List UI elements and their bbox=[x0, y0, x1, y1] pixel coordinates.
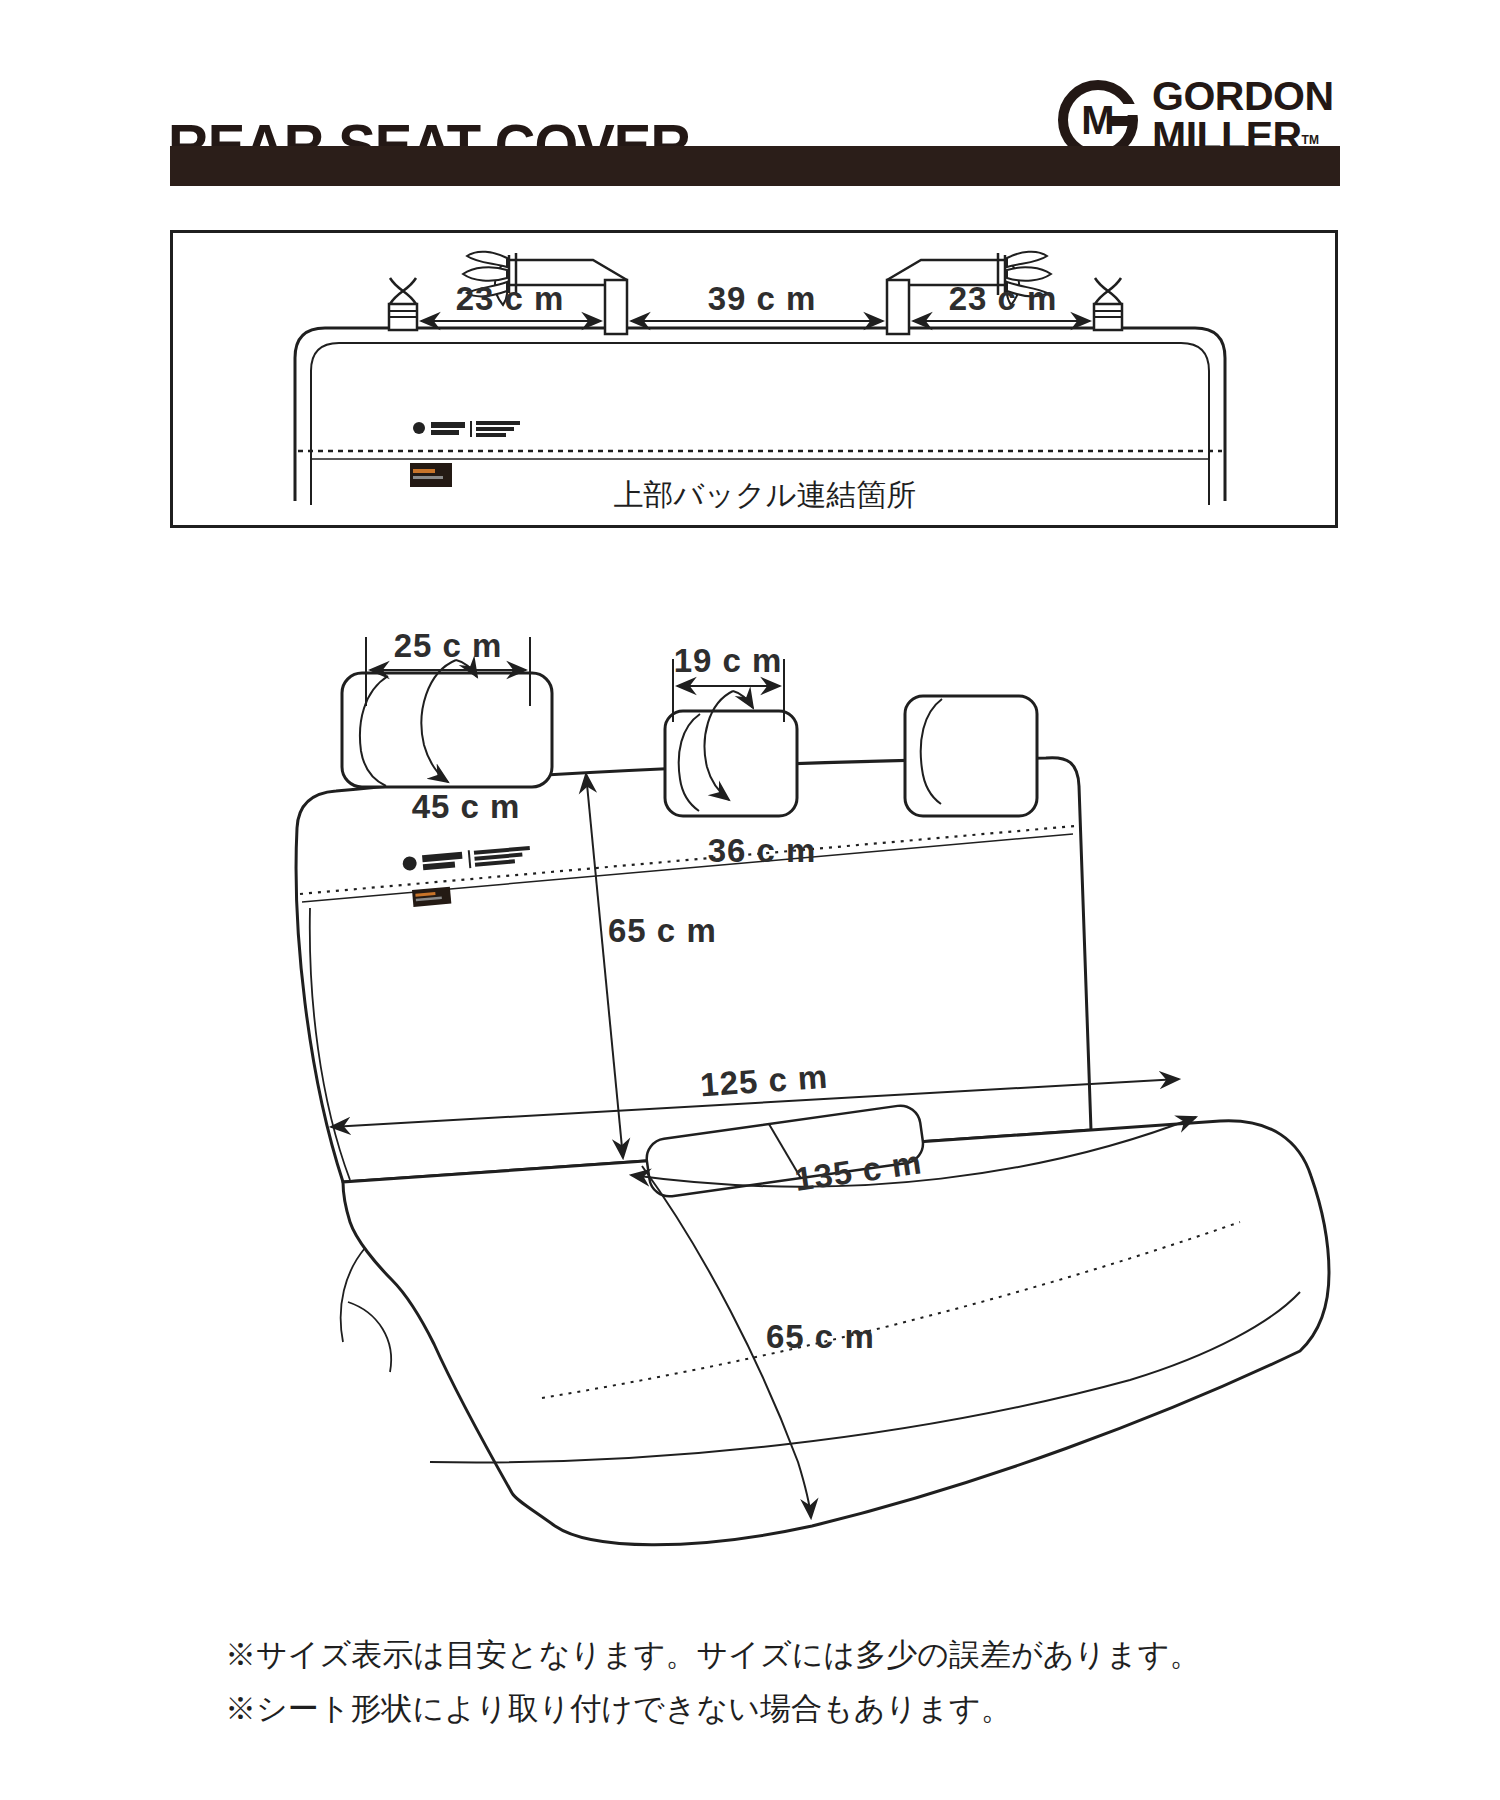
stitch-line bbox=[298, 451, 1222, 459]
dim-label-65-back: 65 c m bbox=[608, 912, 717, 949]
cushion-side-notch bbox=[348, 1302, 391, 1372]
dim-label-39: 39 c m bbox=[708, 280, 817, 317]
dim-arrows-top: 23 c m 39 c m 23 c m bbox=[421, 280, 1090, 321]
note-line-2: ※シート形状により取り付けできない場合もあります。 bbox=[225, 1688, 1012, 1730]
dim-label-23-left: 23 c m bbox=[456, 280, 565, 317]
dim-label-25: 25 c m bbox=[394, 627, 503, 664]
right-clip-buckle bbox=[1094, 278, 1122, 330]
headrest-left bbox=[342, 660, 552, 787]
dim-label-23-right: 23 c m bbox=[949, 280, 1058, 317]
headrest-middle bbox=[665, 691, 797, 816]
dim-label-36: 36 c m bbox=[708, 832, 817, 869]
dim-label-45: 45 c m bbox=[412, 788, 521, 825]
headrest-right bbox=[905, 696, 1037, 816]
dim-label-65-cushion: 65 c m bbox=[766, 1318, 875, 1355]
dim-label-19: 19 c m bbox=[674, 642, 783, 679]
note-line-1: ※サイズ表示は目安となります。サイズには多少の誤差があります。 bbox=[225, 1634, 1201, 1676]
title-divider-bar bbox=[170, 146, 1340, 186]
printed-brand-logo bbox=[413, 421, 520, 437]
top-diagram-svg: 23 c m 39 c m 23 c m 上部バックル連結箇所 bbox=[173, 233, 1335, 525]
top-panel-caption: 上部バックル連結箇所 bbox=[614, 478, 917, 511]
left-clip-buckle bbox=[389, 278, 417, 330]
cushion-side-seam bbox=[341, 1248, 365, 1342]
fabric-label-tag bbox=[410, 463, 452, 487]
fabric-label-tag bbox=[412, 887, 451, 907]
top-panel: 23 c m 39 c m 23 c m 上部バックル連結箇所 bbox=[170, 230, 1338, 528]
page: REAR SEAT COVER M GORDON MILLERTM bbox=[0, 0, 1500, 1800]
brand-tm: TM bbox=[1302, 133, 1319, 147]
svg-text:M: M bbox=[1081, 98, 1114, 142]
main-diagram-svg: 65 c m 125 c m 135 c m 65 c m bbox=[150, 560, 1350, 1620]
